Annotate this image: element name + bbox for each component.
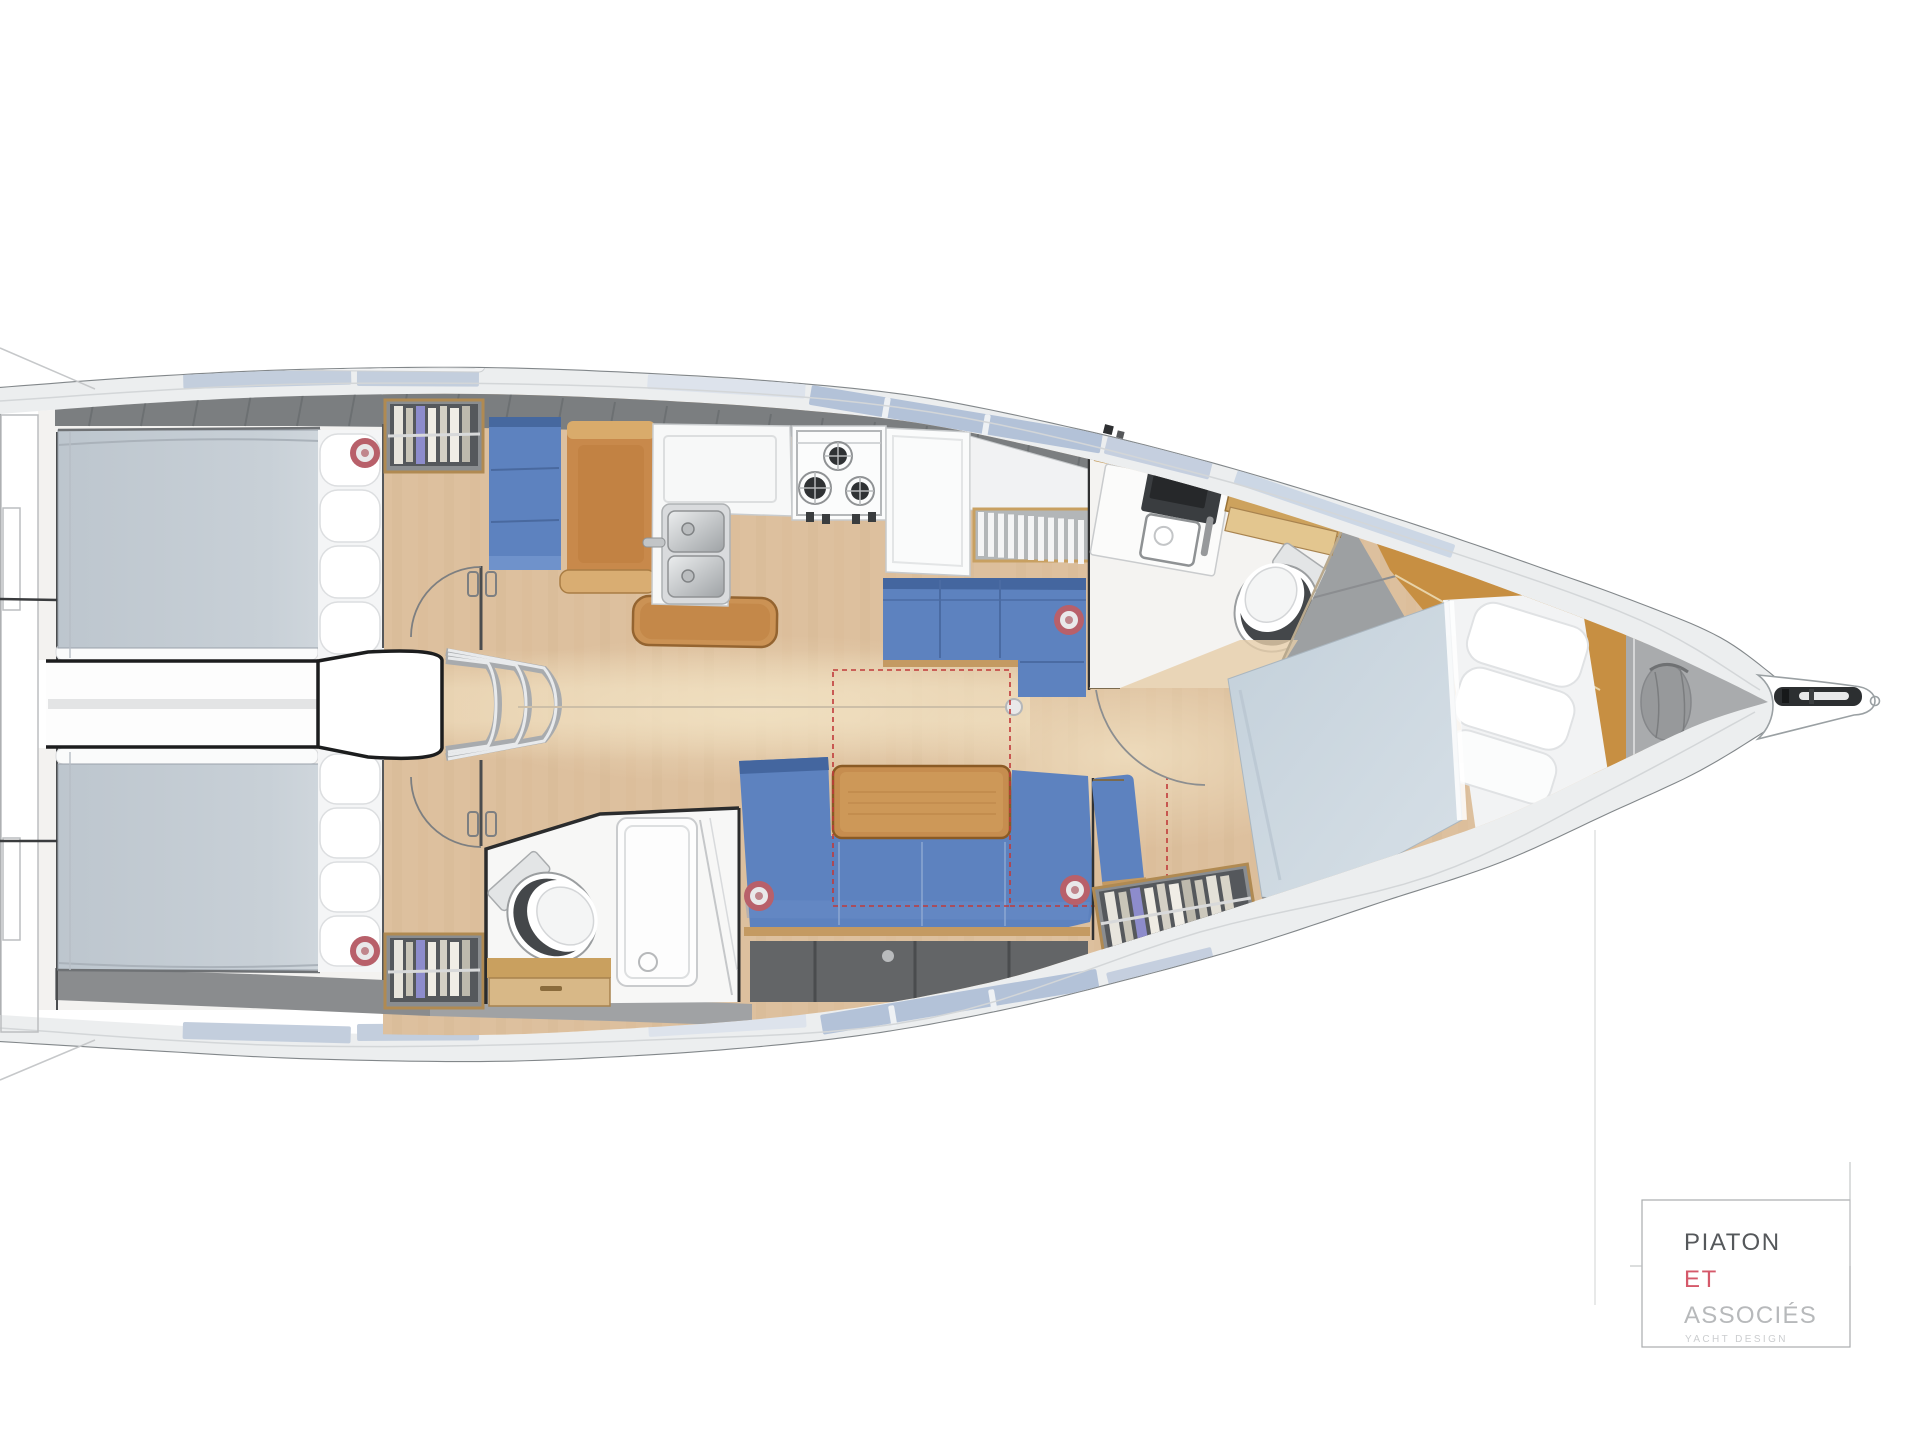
svg-text:ET: ET	[1684, 1266, 1718, 1293]
svg-text:ASSOCIÉS: ASSOCIÉS	[1684, 1302, 1817, 1329]
svg-text:PIATON: PIATON	[1684, 1229, 1781, 1256]
svg-text:YACHT DESIGN: YACHT DESIGN	[1685, 1334, 1788, 1345]
